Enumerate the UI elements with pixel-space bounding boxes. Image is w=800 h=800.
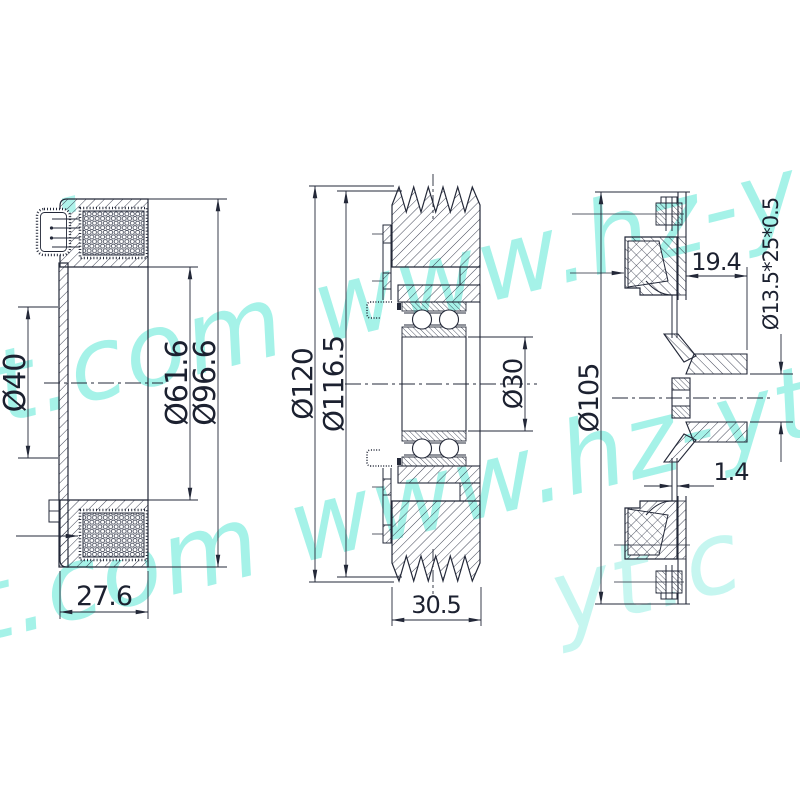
dim-coil-outer-label: Ø96.6 (188, 340, 223, 425)
dim-pulley-groove-label: Ø116.5 (317, 336, 350, 432)
dim-hub-spec-label: Ø13.5*25*0.5 (759, 198, 783, 330)
dim-coil-width: 27.6 (60, 571, 148, 619)
technical-drawing: Ø40 Ø61.6 Ø96.6 27.6 (0, 0, 800, 800)
dim-coil-width-label: 27.6 (76, 581, 132, 612)
dim-pulley-bore-label: Ø30 (499, 359, 529, 410)
dim-coil-bore: Ø40 (0, 307, 58, 458)
limiter-bolt-top (572, 197, 684, 231)
pulley-rim-bottom (392, 501, 480, 581)
dim-hub-spec: Ø13.5*25*0.5 (750, 198, 793, 462)
dim-coil-bore-label: Ø40 (0, 354, 33, 413)
dim-hub-thickness-label: 1.4 (713, 458, 748, 486)
dim-hub-depth: 19.4 (686, 248, 747, 350)
pulley-view: Ø120 Ø116.5 Ø30 30.5 (286, 174, 537, 626)
dim-hub-thickness: 1.4 (644, 458, 749, 486)
limiter-bolt-bottom (614, 565, 684, 599)
coil-view: Ø40 Ø61.6 Ø96.6 27.6 (0, 199, 227, 619)
dim-hub-outer-label: Ø105 (574, 364, 605, 433)
dim-pulley-width: 30.5 (392, 587, 481, 626)
hub-view: Ø105 19.4 Ø13.5*25*0.5 1.4 (570, 192, 793, 604)
drawing-canvas: t.com www.hz-y t.com www.hz-yt yt.c hz-y… (0, 0, 800, 800)
dim-pulley-bore: Ø30 (468, 337, 533, 431)
dim-hub-depth-label: 19.4 (691, 248, 740, 276)
dim-pulley-outer-label: Ø120 (286, 348, 319, 419)
dim-pulley-width-label: 30.5 (411, 591, 460, 619)
pulley-rim-top (392, 187, 480, 267)
